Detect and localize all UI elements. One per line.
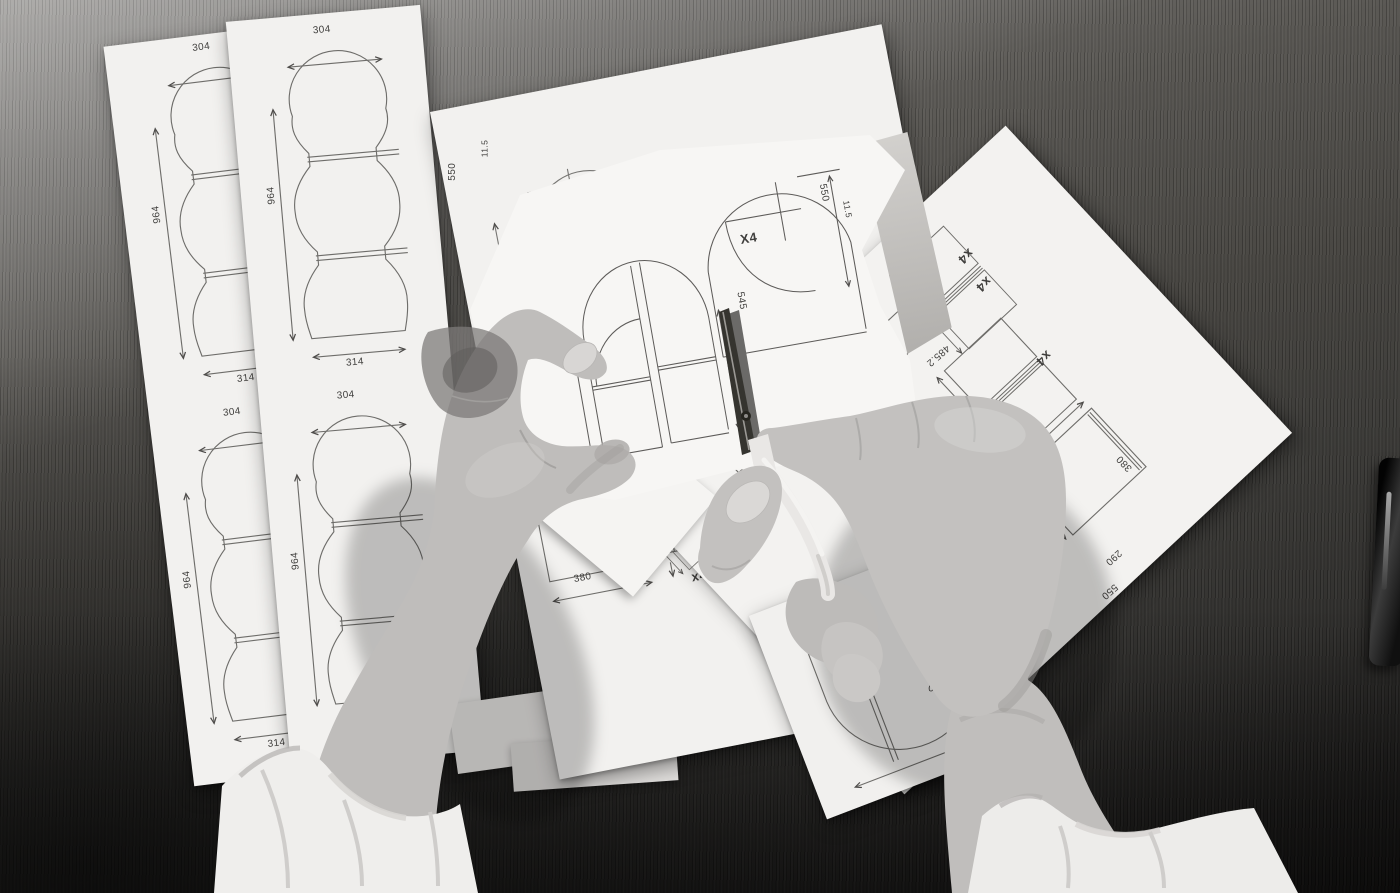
photo-scene: 304 964 314 304 964 314 304 964 314 304 … xyxy=(0,0,1400,893)
right-thumb xyxy=(698,466,782,583)
hands-layer xyxy=(0,0,1400,893)
right-sleeve-cuff xyxy=(968,796,1298,893)
pen-clip xyxy=(1382,492,1392,590)
